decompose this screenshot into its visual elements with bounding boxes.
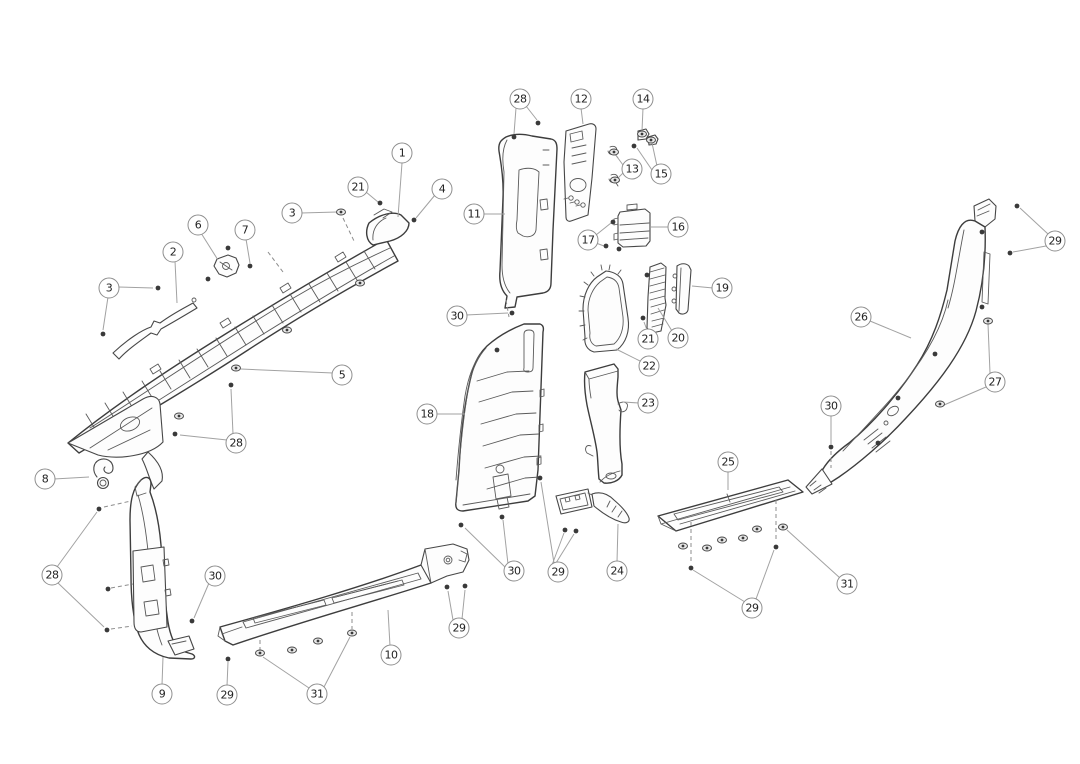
callout-leader-line <box>54 477 89 479</box>
callout-leader-line <box>465 528 505 567</box>
callout-leader-line <box>175 261 177 303</box>
callout-leader-line <box>194 583 209 618</box>
callout-leader-line <box>615 154 623 165</box>
screw-icon <box>645 273 650 278</box>
callout-leader-line <box>263 657 309 688</box>
screw-icon <box>459 523 464 528</box>
callout-leader-line <box>596 223 611 235</box>
screw-icon <box>689 566 694 571</box>
screw-icon <box>156 286 161 291</box>
clip-icon <box>647 137 656 143</box>
callout-leader-line <box>162 657 163 685</box>
screw-icon <box>538 476 543 481</box>
screw-icon <box>896 396 901 401</box>
screw-icon <box>229 383 234 388</box>
part-b-pillar-lower-trim <box>456 324 544 511</box>
clip-icon <box>288 647 297 653</box>
screw-icon <box>604 244 609 249</box>
screw-icon <box>101 332 106 337</box>
callout-leader-line <box>201 233 218 260</box>
clip-icon <box>936 401 945 407</box>
callout-leader-line <box>301 212 337 213</box>
clip-icon <box>356 280 365 286</box>
part-bracket-24 <box>556 489 629 523</box>
screw-icon <box>1015 204 1020 209</box>
screw-icon <box>500 515 505 520</box>
screw-icon <box>510 311 515 316</box>
fastener-dashed-guide-line <box>343 218 355 243</box>
screw-icon <box>463 584 468 589</box>
screw-icon <box>412 218 417 223</box>
screw-icon <box>774 545 779 550</box>
clip-icon <box>753 526 762 532</box>
callout-leader-line <box>58 583 104 627</box>
part-c-pillar-lower-trim <box>806 199 996 494</box>
callout-leader-line <box>581 108 583 124</box>
part-panel-20 <box>647 263 666 333</box>
callout-leader-line <box>180 435 227 440</box>
screw-icon <box>206 277 211 282</box>
clip-icon <box>337 209 346 215</box>
clip-icon <box>283 327 292 333</box>
part-panel-19 <box>672 264 691 314</box>
callout-leader-line <box>514 108 516 134</box>
callout-leader-line <box>227 662 228 686</box>
screw-icon <box>445 585 450 590</box>
screw-icon <box>617 247 622 252</box>
callout-leader-line <box>652 143 657 166</box>
callout-leader-line <box>617 524 618 562</box>
parts-line-art <box>0 0 1080 764</box>
clip-icon <box>679 543 688 549</box>
callout-leader-line <box>596 243 604 246</box>
part-cowl-side-trim <box>130 477 195 659</box>
clip-icon <box>739 535 748 541</box>
callout-leader-line <box>944 387 986 405</box>
clip-icon <box>256 650 265 656</box>
fastener-dashed-guide-line <box>104 501 131 507</box>
callout-leader-line <box>988 324 990 373</box>
screw-icon <box>226 657 231 662</box>
screw-icon <box>876 441 881 446</box>
clip-icon <box>610 149 619 155</box>
part-b-pillar-upper-trim <box>499 134 557 308</box>
fastener-dashed-guide-line <box>111 626 132 629</box>
part-rear-scuff-plate <box>658 480 803 531</box>
screw-icon <box>632 144 637 149</box>
screw-icon <box>512 135 517 140</box>
callout-leader-line <box>416 195 435 218</box>
screw-icon <box>495 348 500 353</box>
callout-leader-line <box>448 591 453 620</box>
callout-leader-line <box>118 287 153 288</box>
callout-leader-line <box>462 590 465 619</box>
callout-leader-line <box>870 321 911 338</box>
callout-leader-line <box>526 106 537 120</box>
screw-icon <box>536 121 541 126</box>
fastener-dashed-guide-line <box>111 584 133 588</box>
callout-leader-line <box>541 482 554 563</box>
screw-icon <box>829 445 834 450</box>
callout-leader-line <box>398 163 402 217</box>
callout-leader-line <box>246 239 250 263</box>
callout-leader-line <box>1013 246 1046 252</box>
callout-leader-line <box>103 297 108 330</box>
screw-icon <box>563 528 568 533</box>
screw-icon <box>1008 251 1013 256</box>
clip-icon <box>232 365 241 371</box>
screw-icon <box>248 264 253 269</box>
part-seal-22 <box>579 265 629 352</box>
clip-icon <box>611 177 620 183</box>
callout-leader-line <box>241 369 333 373</box>
callout-leader-line <box>57 512 97 567</box>
part-front-scuff-plate <box>218 544 469 645</box>
clip-icon <box>638 131 647 137</box>
screw-icon <box>980 230 985 235</box>
screw-icon <box>378 201 383 206</box>
part-bracket-6 <box>214 255 239 277</box>
callout-leader-line <box>1020 208 1048 234</box>
callout-leader-line <box>503 520 508 564</box>
callout-leader-line <box>692 286 713 288</box>
callout-leader-line <box>388 610 390 646</box>
callout-leader-line <box>637 148 652 170</box>
part-duct-23 <box>585 364 628 483</box>
screw-icon <box>574 529 579 534</box>
clip-icon <box>779 524 788 530</box>
screw-icon <box>105 628 110 633</box>
screw-icon <box>226 246 231 251</box>
part-module-16 <box>614 204 650 247</box>
screw-icon <box>611 220 616 225</box>
callout-leader-line <box>756 550 774 599</box>
fastener-dashed-guide-line <box>268 252 283 272</box>
part-b-pillar-inner-panel <box>564 124 596 222</box>
part-coat-hook <box>94 459 113 489</box>
callout-leader-line <box>324 637 350 687</box>
callout-leader-line <box>366 192 378 202</box>
callout-leader-line <box>466 313 508 315</box>
clip-icon <box>984 318 993 324</box>
screw-icon <box>980 305 985 310</box>
clip-icon <box>175 413 184 419</box>
screw-icon <box>933 352 938 357</box>
screw-icon <box>190 619 195 624</box>
clip-icon <box>314 638 323 644</box>
callout-leader-line <box>642 108 643 131</box>
parts-diagram-stage: 1214367235282812141315111716301920212223… <box>0 0 1080 764</box>
screw-icon <box>641 316 646 321</box>
callout-leader-line <box>231 389 233 434</box>
clip-icon <box>348 630 357 636</box>
callout-leader-line <box>693 570 745 602</box>
clip-icon <box>718 537 727 543</box>
callout-leader-line <box>787 530 840 578</box>
clip-icon <box>703 545 712 551</box>
part-windshield-garnish-strip <box>113 298 197 359</box>
screw-icon <box>173 432 178 437</box>
screw-icon <box>97 507 102 512</box>
callout-leader-line <box>616 349 640 361</box>
screw-icon <box>106 587 111 592</box>
